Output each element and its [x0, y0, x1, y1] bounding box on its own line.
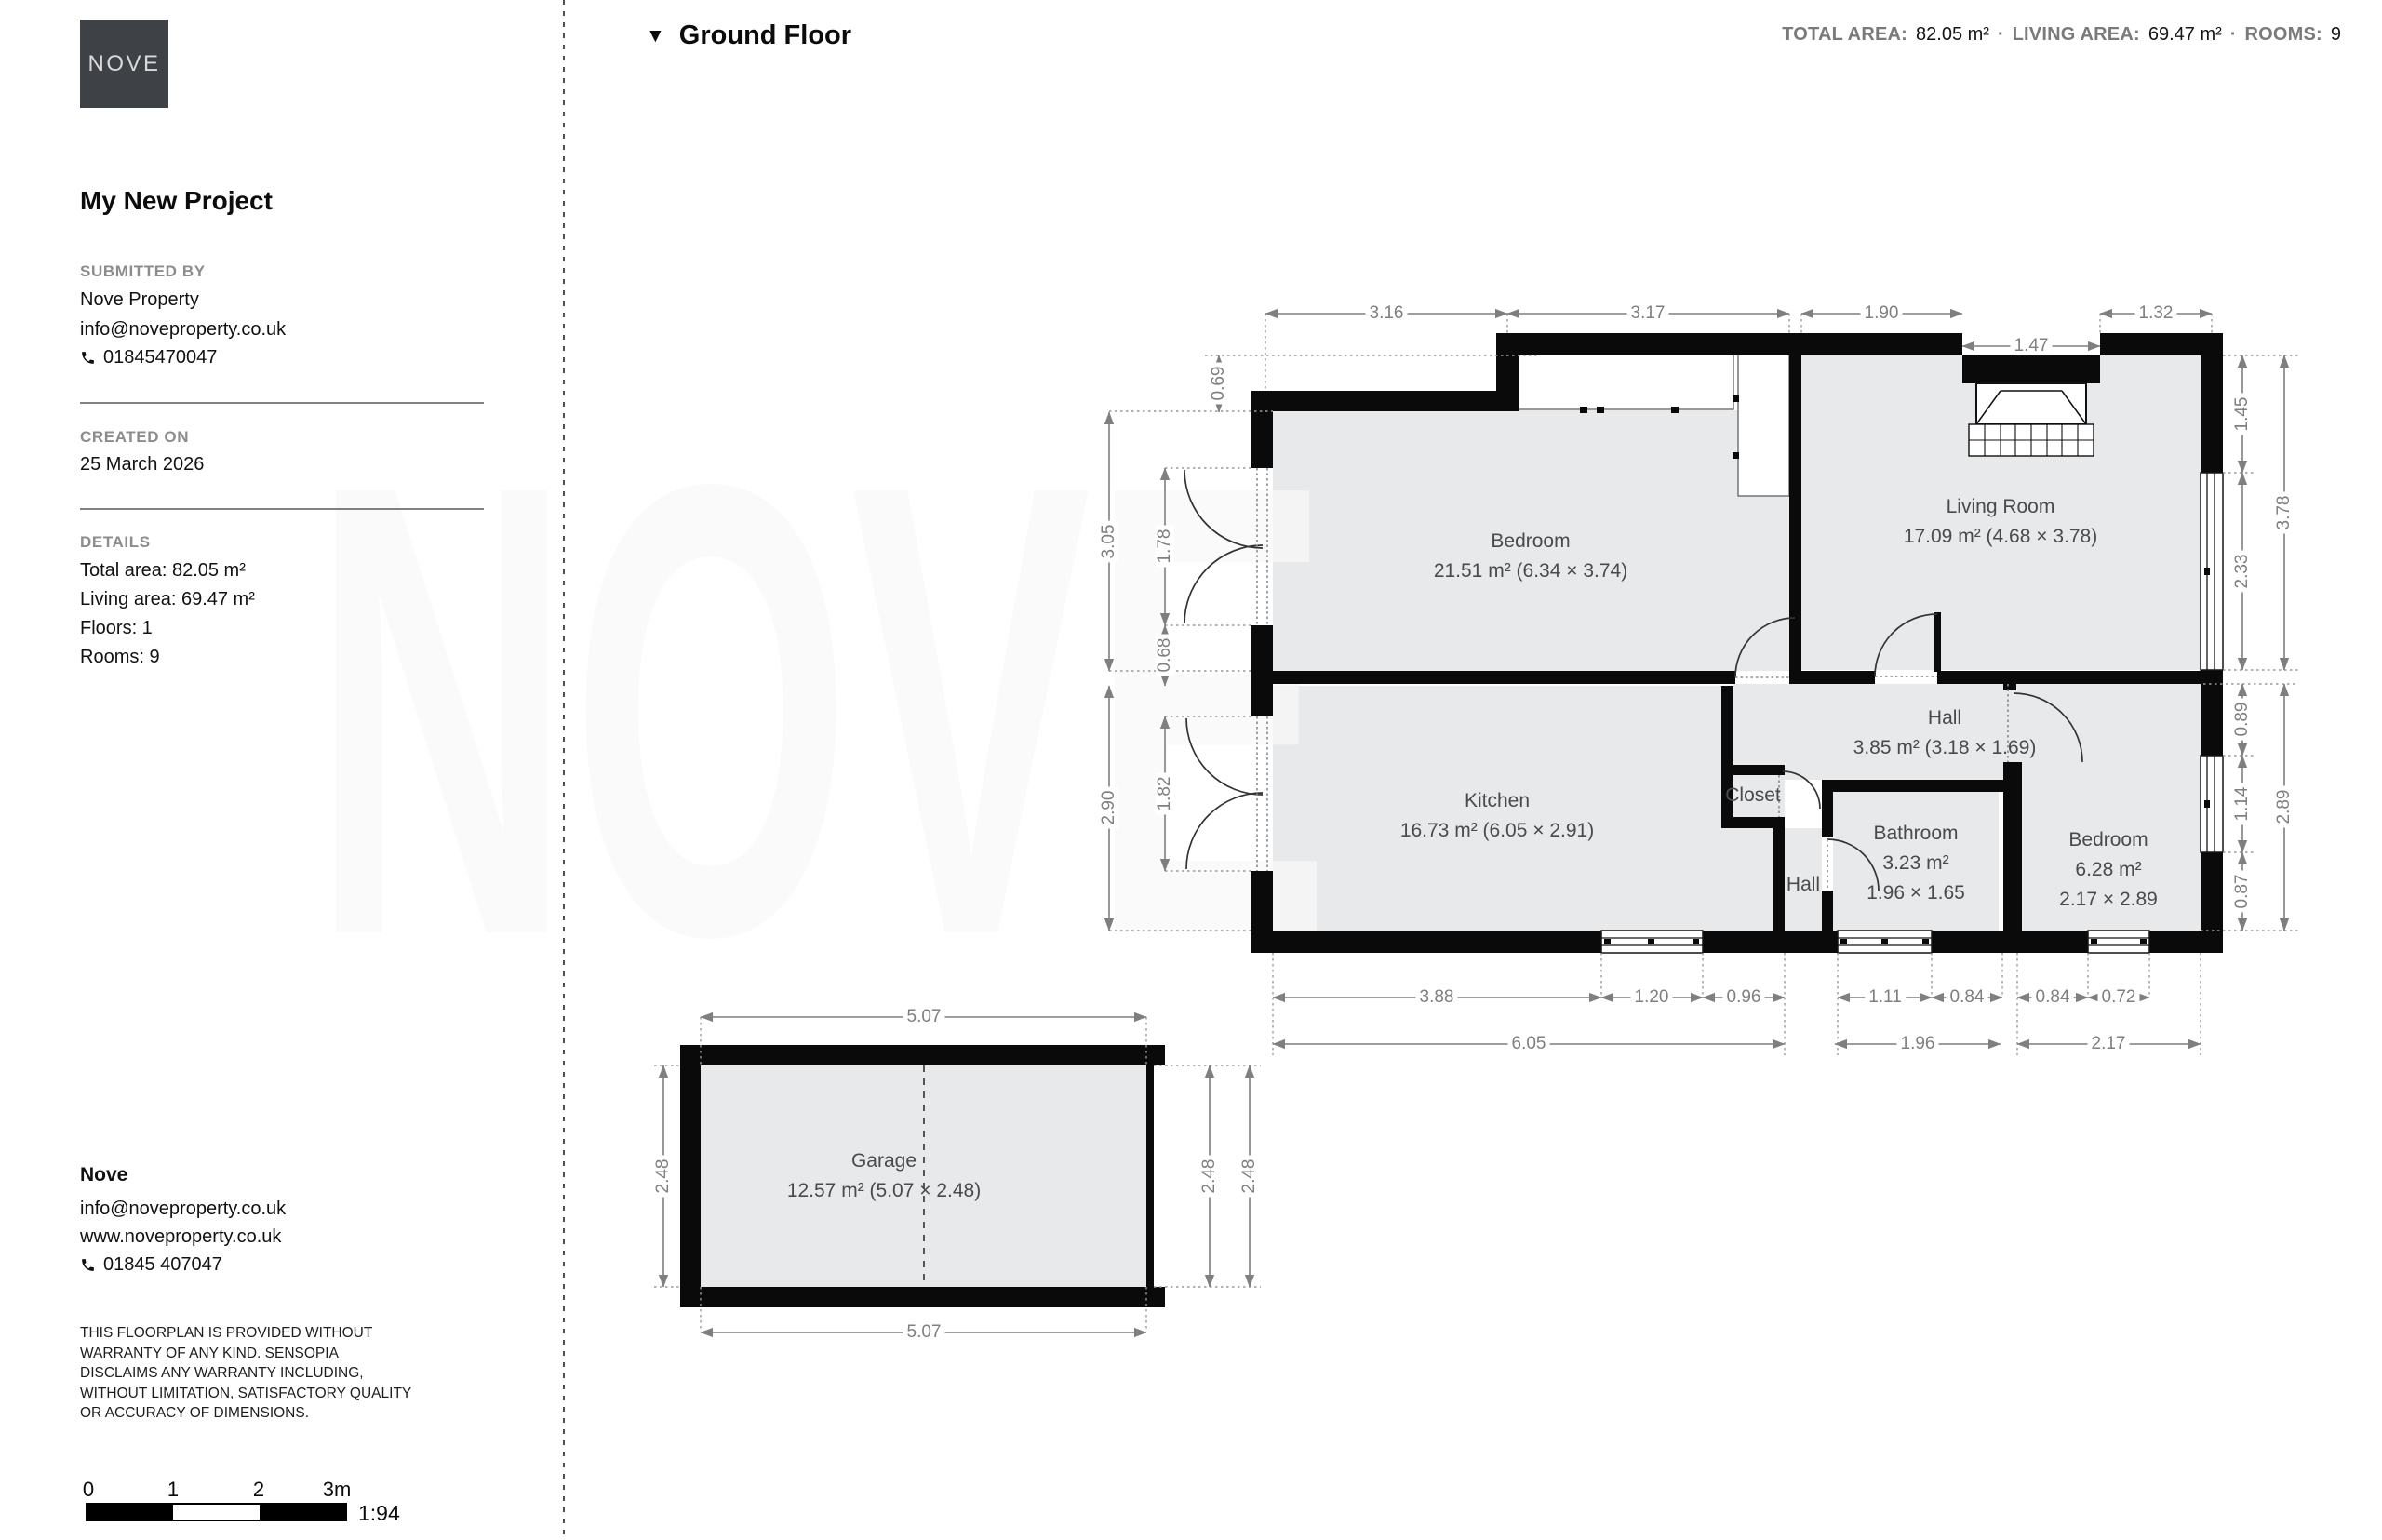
stat-separator: · — [2230, 24, 2237, 46]
details-living-area: Living area: 69.47 m² — [80, 589, 255, 610]
footer-email: info@noveproperty.co.uk — [80, 1199, 286, 1220]
phone-icon — [80, 350, 96, 366]
rooms-value: 9 — [2331, 24, 2341, 46]
submitted-by-company: Nove Property — [80, 289, 199, 311]
dimension-label: 3.17 — [1627, 304, 1669, 323]
dimension-label: 0.89 — [2233, 699, 2252, 741]
dimension-label: 0.69 — [1210, 363, 1228, 405]
dimension-label: 1.90 — [1861, 304, 1903, 323]
disclaimer-line: THIS FLOORPLAN IS PROVIDED WITHOUT — [80, 1323, 415, 1344]
room-label-kitchen: Kitchen — [1465, 790, 1530, 812]
footer-company: Nove — [80, 1164, 127, 1186]
dimension-label: 3.88 — [1416, 988, 1458, 1007]
divider-line — [80, 508, 484, 510]
nove-logo-text: NOVE — [87, 51, 160, 77]
total-area-value: 82.05 m² — [1916, 24, 1989, 46]
dimension-label: 0.68 — [1156, 635, 1174, 676]
room-label-bedroom-2: Bedroom — [2068, 829, 2148, 851]
collapse-triangle-icon[interactable]: ▼ — [646, 26, 665, 46]
disclaimer-line: WARRANTY OF ANY KIND. SENSOPIA — [80, 1344, 415, 1364]
room-label-bedroom-2: 6.28 m² — [2075, 859, 2141, 881]
submitted-by-phone: 01845470047 — [80, 347, 217, 368]
scale-ratio: 1:94 — [358, 1501, 400, 1526]
footer-phone-number: 01845 407047 — [103, 1254, 222, 1276]
room-label-bathroom: 1.96 × 1.65 — [1867, 882, 1965, 904]
scale-tick-1: 1 — [167, 1478, 179, 1502]
room-label-bathroom: Bathroom — [1873, 823, 1958, 845]
room-label-kitchen: 16.73 m² (6.05 × 2.91) — [1400, 820, 1594, 842]
dimension-label: 0.84 — [1947, 988, 1988, 1007]
disclaimer-line: DISCLAIMS ANY WARRANTY INCLUDING, — [80, 1363, 415, 1384]
dimension-label: 1.78 — [1156, 526, 1174, 568]
rooms-label: ROOMS: — [2244, 24, 2322, 46]
dimension-label: 2.17 — [2088, 1035, 2130, 1053]
room-label-hall-2: Hall — [1786, 874, 1820, 896]
created-on-heading: CREATED ON — [80, 428, 189, 447]
room-label-hall: Hall — [1928, 707, 1961, 730]
dimension-label: 1.11 — [1865, 988, 1906, 1007]
disclaimer-line: OR ACCURACY OF DIMENSIONS. — [80, 1403, 415, 1424]
dimension-label: 5.07 — [903, 1008, 945, 1026]
nove-watermark-overlay: NOVE — [312, 352, 1331, 1069]
disclaimer-line: WITHOUT LIMITATION, SATISFACTORY QUALITY — [80, 1384, 415, 1404]
dimension-label: 2.33 — [2233, 551, 2252, 593]
area-stats: TOTAL AREA: 82.05 m² · LIVING AREA: 69.4… — [1782, 24, 2341, 46]
dimension-label: 2.48 — [1200, 1156, 1219, 1198]
room-label-garage: 12.57 m² (5.07 × 2.48) — [787, 1180, 981, 1202]
room-label-closet: Closet — [1725, 784, 1781, 807]
dimension-label: 2.48 — [1240, 1156, 1259, 1198]
room-label-living-room: Living Room — [1947, 496, 2055, 518]
dimension-label: 1.20 — [1631, 988, 1673, 1007]
total-area-label: TOTAL AREA: — [1782, 24, 1907, 46]
dimension-label: 2.90 — [1100, 787, 1118, 829]
details-total-area: Total area: 82.05 m² — [80, 560, 246, 582]
floor-title: Ground Floor — [679, 20, 851, 51]
dimension-label: 1.82 — [1156, 773, 1174, 815]
phone-icon — [80, 1257, 96, 1273]
dimension-label: 2.48 — [654, 1156, 673, 1198]
divider-line — [80, 402, 484, 404]
dimension-label: 1.47 — [2011, 337, 2053, 355]
dimension-label: 0.84 — [2032, 988, 2074, 1007]
dimension-label: 0.87 — [2233, 871, 2252, 913]
room-label-hall: 3.85 m² (3.18 × 1.69) — [1853, 737, 2037, 759]
details-rooms: Rooms: 9 — [80, 647, 160, 668]
stat-separator: · — [1998, 24, 2004, 46]
living-area-label: LIVING AREA: — [2013, 24, 2140, 46]
submitted-by-email: info@noveproperty.co.uk — [80, 319, 286, 341]
dimension-label: 1.32 — [2135, 304, 2177, 323]
dimension-label: 3.78 — [2275, 492, 2294, 534]
submitted-by-heading: SUBMITTED BY — [80, 262, 206, 281]
room-label-garage: Garage — [851, 1150, 917, 1172]
nove-logo: NOVE — [80, 20, 168, 108]
dimension-label: 1.96 — [1897, 1035, 1939, 1053]
submitted-by-phone-number: 01845470047 — [103, 347, 217, 368]
dimension-label: 2.89 — [2275, 786, 2294, 828]
room-label-bathroom: 3.23 m² — [1882, 852, 1948, 875]
project-title: My New Project — [80, 186, 273, 216]
dimension-label: 3.16 — [1366, 304, 1408, 323]
living-area-value: 69.47 m² — [2148, 24, 2222, 46]
footer-phone: 01845 407047 — [80, 1254, 222, 1276]
room-label-living-room: 17.09 m² (4.68 × 3.78) — [1904, 526, 2097, 548]
room-label-bedroom-2: 2.17 × 2.89 — [2059, 889, 2158, 911]
details-heading: DETAILS — [80, 533, 151, 552]
room-label-bedroom-1: 21.51 m² (6.34 × 3.74) — [1434, 560, 1627, 583]
fireplace — [1969, 383, 2094, 456]
scale-tick-0: 0 — [83, 1478, 94, 1502]
created-on-date: 25 March 2026 — [80, 454, 204, 475]
dimension-label: 0.96 — [1723, 988, 1765, 1007]
floor-selector[interactable]: ▼ Ground Floor — [646, 20, 851, 51]
room-label-bedroom-1: Bedroom — [1491, 530, 1570, 553]
dimension-label: 1.14 — [2233, 783, 2252, 825]
scale-tick-2: 2 — [253, 1478, 264, 1502]
floorplan-canvas: NOVE NOVE — [0, 0, 2382, 1540]
dimension-label: 1.45 — [2233, 394, 2252, 435]
dimension-label: 6.05 — [1508, 1035, 1550, 1053]
details-floors: Floors: 1 — [80, 618, 153, 639]
dimension-label: 5.07 — [903, 1323, 945, 1342]
disclaimer: THIS FLOORPLAN IS PROVIDED WITHOUT WARRA… — [80, 1323, 415, 1424]
footer-website: www.noveproperty.co.uk — [80, 1226, 281, 1248]
scale-bar — [86, 1503, 347, 1521]
dimension-label: 3.05 — [1100, 521, 1118, 563]
scale-tick-3: 3m — [323, 1478, 352, 1502]
dimension-label: 0.72 — [2098, 988, 2140, 1007]
